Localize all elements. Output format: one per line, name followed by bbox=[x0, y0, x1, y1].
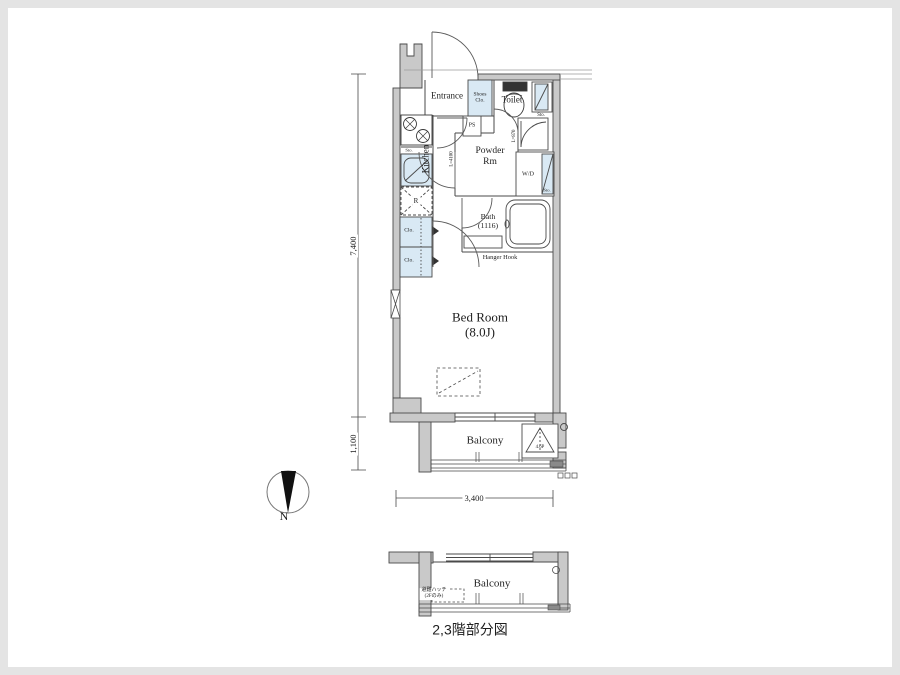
shoes-closet-label: Shoes Clo. bbox=[474, 92, 487, 105]
balcony-drain-block bbox=[550, 461, 563, 467]
balcony-label: Balcony bbox=[467, 435, 504, 448]
balcony-small-squares bbox=[558, 473, 577, 478]
storage-top-label: Sto. bbox=[537, 113, 545, 119]
floorplan-page: Entrance Shoes Clo. Toilet PS Sto. L=870… bbox=[0, 0, 900, 675]
left-window-icon bbox=[391, 290, 400, 318]
dimension-width-label: 3,400 bbox=[462, 493, 485, 503]
closet2-label: Clo. bbox=[404, 258, 413, 265]
storage-kitchen-label: Sto. bbox=[405, 147, 412, 152]
north-label: N bbox=[280, 509, 289, 523]
kitchen-label: Kitchen bbox=[420, 145, 431, 174]
bath-label: Bath (1116) bbox=[478, 212, 498, 230]
stove-icon bbox=[401, 115, 432, 145]
toilet-label: Toilet bbox=[502, 95, 523, 106]
hanger-hook-label: Hanger Hook bbox=[483, 254, 518, 262]
lower-hatch-note: 避難ハッチ (2Fのみ) bbox=[419, 588, 448, 600]
bedroom-dashed-area bbox=[437, 368, 480, 396]
storage-wd-label: Sto. bbox=[543, 187, 550, 192]
closet-length-label: L=870 bbox=[512, 130, 518, 143]
refrigerator-label: R bbox=[412, 197, 421, 205]
pipe-space-label: PS bbox=[469, 122, 476, 129]
washer-dryer-label: W/D bbox=[522, 170, 534, 177]
hatch-size-label: 4.6P bbox=[536, 445, 545, 451]
dimension-depth-label: 7,400 bbox=[348, 234, 358, 257]
storage-top-box bbox=[532, 82, 552, 112]
closet1-label: Clo. bbox=[404, 228, 413, 235]
north-arrow-icon bbox=[267, 471, 309, 513]
lower-plan-caption: 2,3階部分図 bbox=[432, 622, 507, 639]
entrance-label: Entrance bbox=[431, 91, 463, 102]
powder-room-label: Powder Rm bbox=[475, 146, 504, 168]
storage-cabinet-box bbox=[518, 118, 548, 150]
kitchen-length-label: L=4100 bbox=[450, 145, 456, 174]
lower-drain-block bbox=[548, 605, 560, 610]
bedroom-label: Bed Room (8.0J) bbox=[452, 310, 508, 341]
lower-balcony-label: Balcony bbox=[474, 578, 511, 591]
balcony-window bbox=[455, 413, 535, 421]
dimension-balcony-label: 1,100 bbox=[348, 432, 358, 455]
